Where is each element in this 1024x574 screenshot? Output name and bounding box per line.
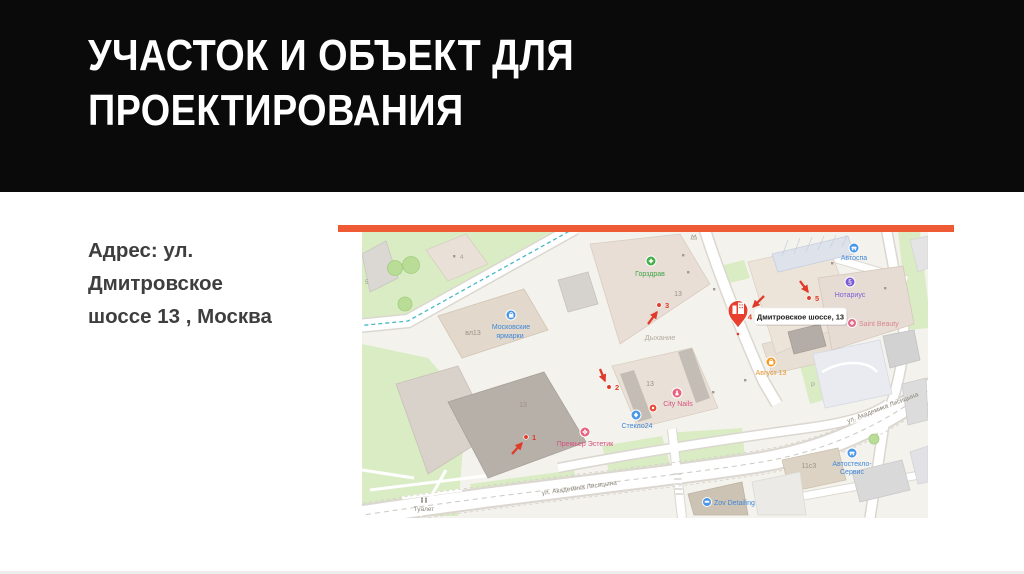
slide-header: УЧАСТОК И ОБЪЕКТ ДЛЯ ПРОЕКТИРОВАНИЯ (0, 0, 1024, 192)
saint-beauty-icon (848, 319, 857, 328)
building-number-11s3: 11с3 (802, 463, 817, 470)
poi-label-steklo24: Стекло24 (621, 423, 652, 430)
poi-label-avtosteklo2: Сервис (840, 469, 864, 476)
poi-label-yarmarki: ярмарки (496, 333, 523, 340)
poi-label-avgust13: Август 13 (756, 370, 787, 377)
route-marker-5: 5 (815, 294, 819, 303)
poi-label-gorzdrav: Горздрав (635, 271, 665, 278)
address-text: Адрес: ул. Дмитровское шоссе 13 , Москва (88, 234, 272, 333)
building-number-13c: 13 (519, 402, 527, 409)
poi-label-saint-beauty: Saint Beauty (859, 321, 899, 328)
premier-estetik-icon (580, 427, 590, 437)
poi-label-tualet: Туалет (414, 506, 435, 513)
parking-label: Р (811, 383, 815, 389)
page-title: УЧАСТОК И ОБЪЕКТ ДЛЯ ПРОЕКТИРОВАНИЯ (88, 28, 574, 138)
poi-label-city-nails: City Nails (663, 401, 693, 408)
slide: УЧАСТОК И ОБЪЕКТ ДЛЯ ПРОЕКТИРОВАНИЯ Адре… (0, 0, 1024, 574)
complex-label-dyhanie: Дыхание (645, 333, 676, 342)
poi-label-avtospa: Автоспа (841, 255, 868, 262)
poi-label-zov: Zov Detailing (714, 500, 755, 507)
svg-text:§: § (848, 280, 852, 287)
accent-bar (338, 225, 954, 232)
poi-label-avtosteklo1: Автостекло- (832, 461, 872, 468)
pin-label-text: Дмитровское шоссе, 13 (757, 313, 844, 322)
building-number-13b: 13 (646, 381, 654, 388)
route-marker-1: 1 (532, 433, 536, 442)
map-screenshot: 13 13 13 вл13 11с3 4 5 Р Дыхание ул. Ака… (362, 232, 928, 518)
map-base: 13 13 13 вл13 11с3 4 5 Р Дыхание ул. Ака… (362, 232, 928, 518)
poi-label-premier: Премьер Эстетик (557, 441, 614, 448)
poi-label-moskovskie: Московские (492, 324, 530, 331)
poi-label-notarius: Нотариус (835, 292, 866, 299)
building-number-13a: 13 (674, 291, 682, 298)
route-marker-3: 3 (665, 301, 669, 310)
route-marker-2: 2 (615, 383, 619, 392)
building-number-vl13: вл13 (465, 330, 481, 337)
